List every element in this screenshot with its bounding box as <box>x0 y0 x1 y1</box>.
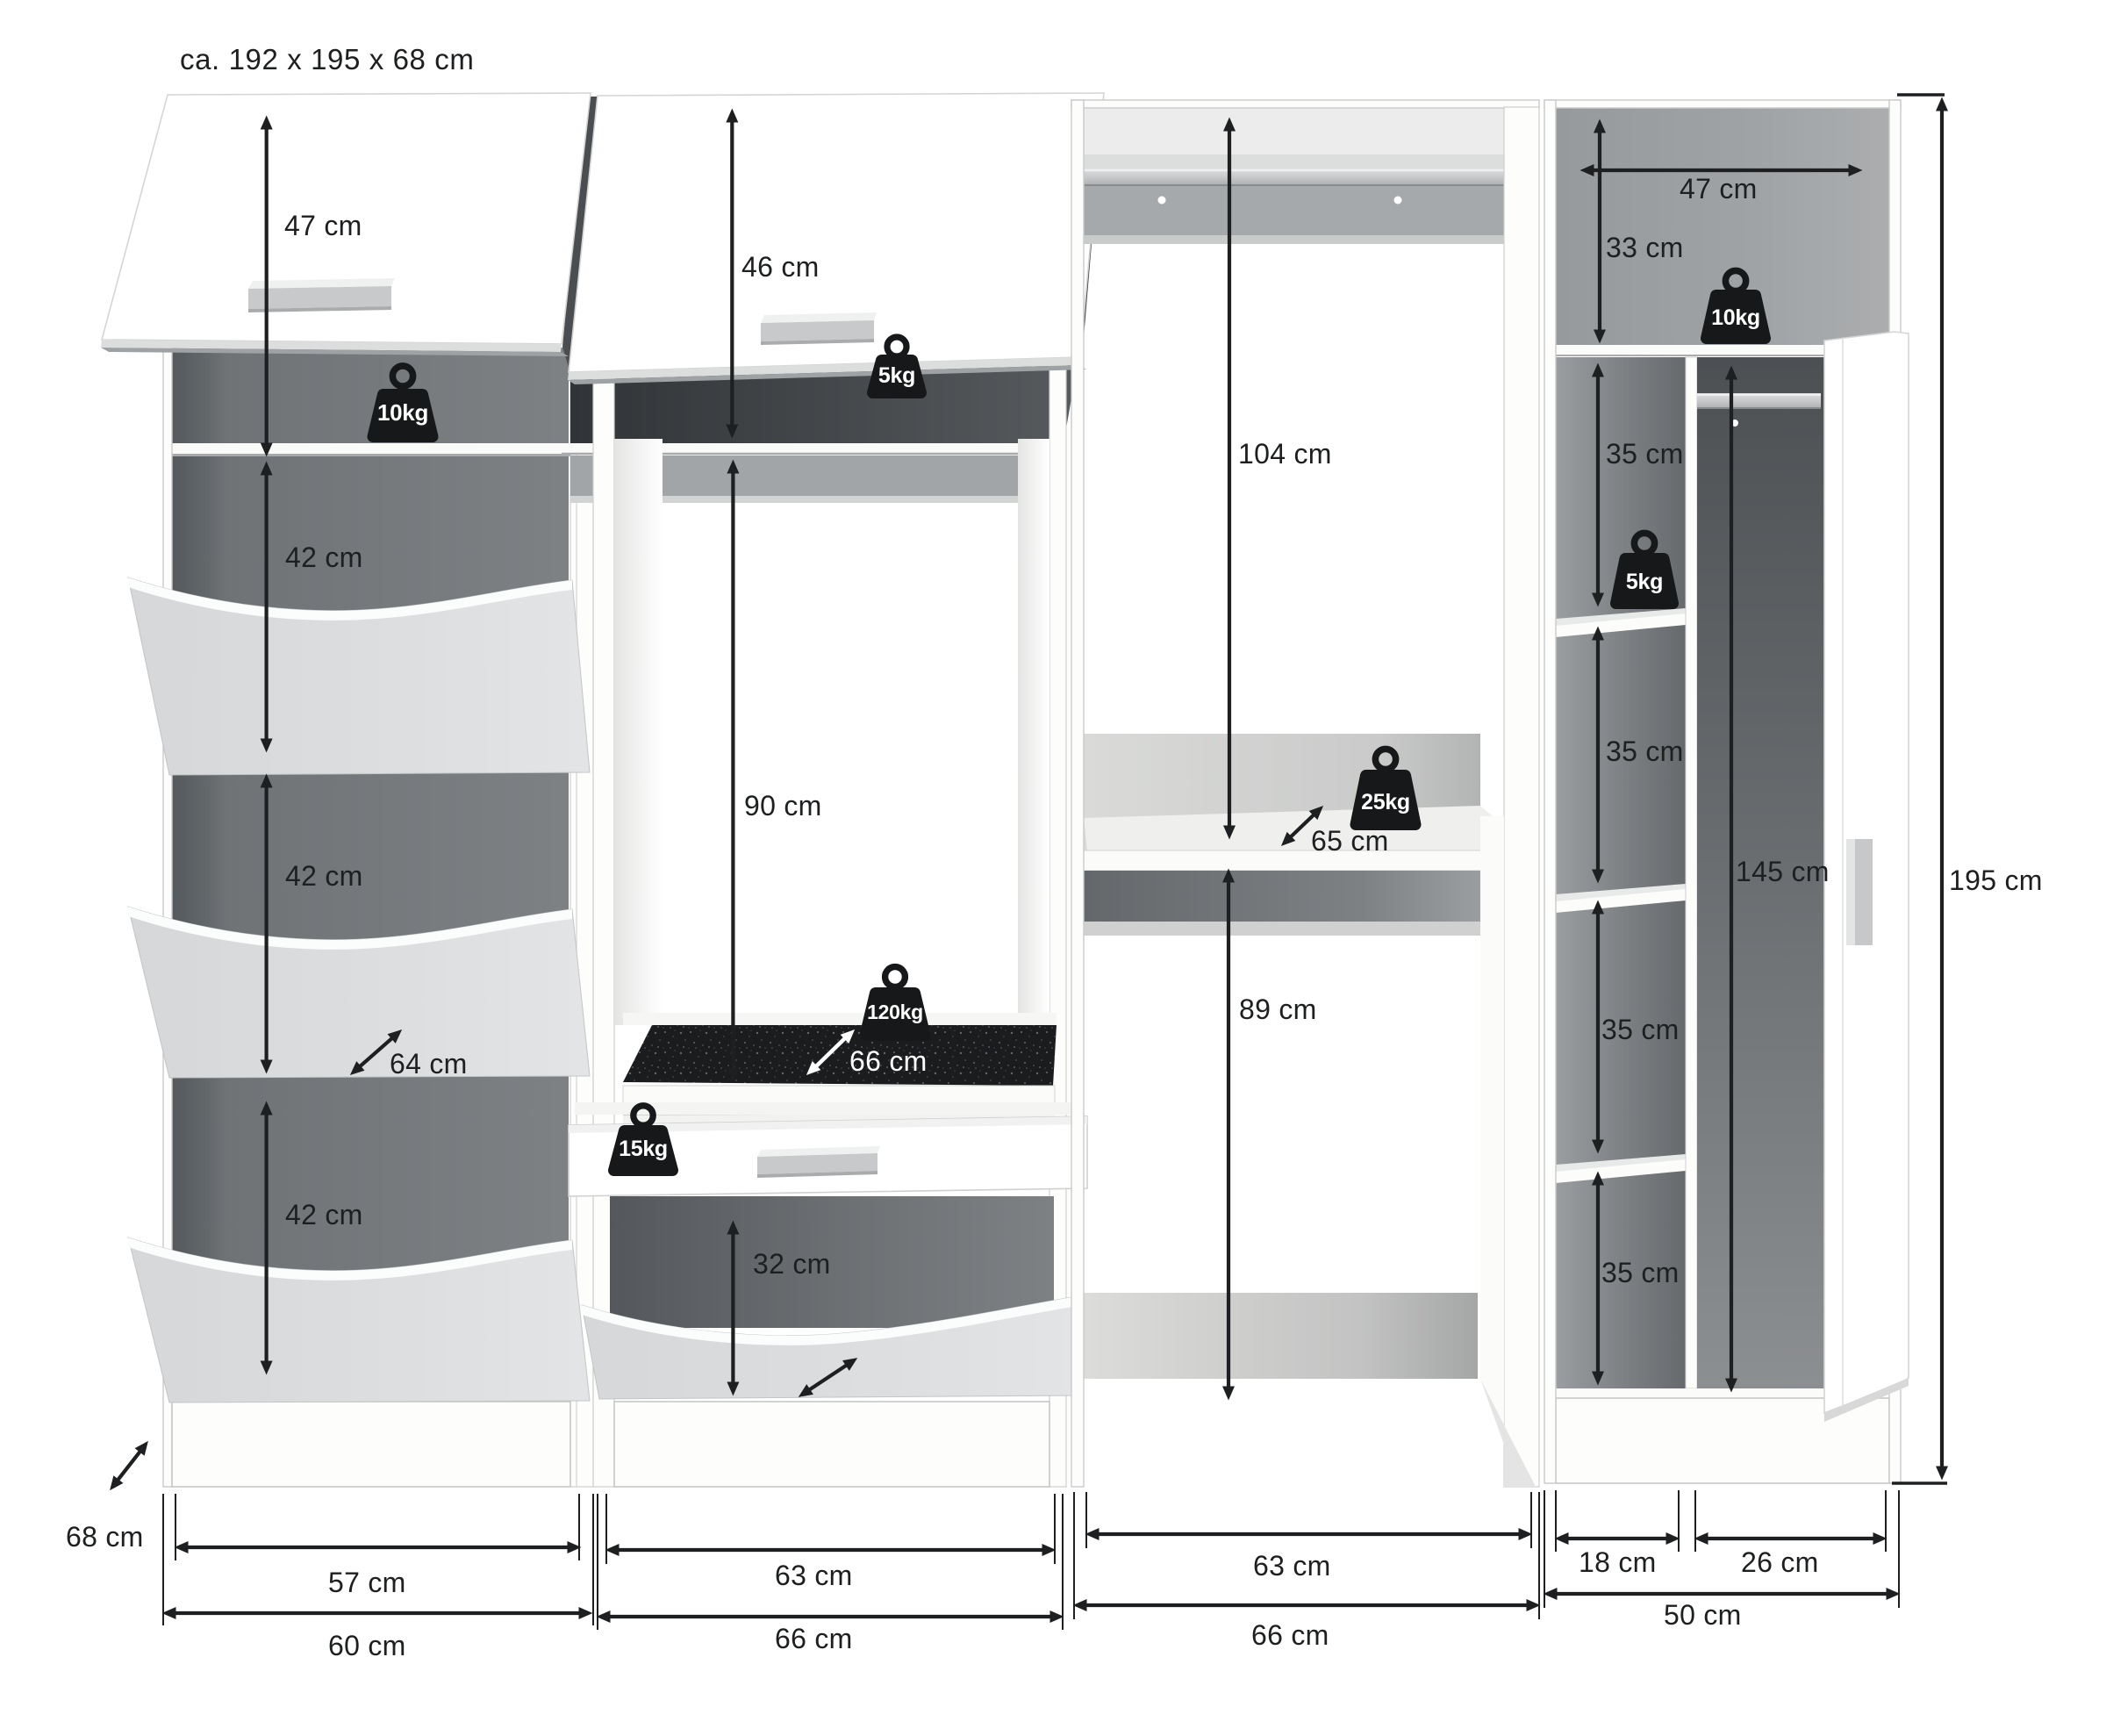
svg-text:42 cm: 42 cm <box>285 1199 363 1230</box>
svg-text:66 cm: 66 cm <box>1251 1619 1329 1651</box>
svg-text:104 cm: 104 cm <box>1238 438 1332 470</box>
svg-text:120kg: 120kg <box>867 1001 923 1023</box>
svg-text:35 cm: 35 cm <box>1601 1014 1680 1045</box>
svg-text:33 cm: 33 cm <box>1606 232 1684 263</box>
svg-text:32 cm: 32 cm <box>753 1248 831 1280</box>
svg-text:90 cm: 90 cm <box>744 790 822 821</box>
svg-text:46 cm: 46 cm <box>741 251 820 283</box>
svg-text:15kg: 15kg <box>619 1137 668 1161</box>
svg-text:35 cm: 35 cm <box>1601 1257 1680 1288</box>
svg-text:145 cm: 145 cm <box>1736 856 1830 887</box>
svg-text:47 cm: 47 cm <box>1680 173 1758 204</box>
svg-text:26 cm: 26 cm <box>1741 1546 1819 1578</box>
svg-text:50 cm: 50 cm <box>1664 1599 1742 1631</box>
svg-text:64 cm: 64 cm <box>390 1048 468 1080</box>
svg-text:60 cm: 60 cm <box>328 1630 406 1661</box>
svg-text:89 cm: 89 cm <box>1239 994 1317 1025</box>
svg-text:195 cm: 195 cm <box>1949 864 2043 896</box>
svg-text:63 cm: 63 cm <box>1253 1550 1331 1582</box>
svg-text:47 cm: 47 cm <box>284 210 362 241</box>
svg-text:18 cm: 18 cm <box>1579 1546 1657 1578</box>
svg-text:5kg: 5kg <box>1626 570 1663 594</box>
svg-text:63 cm: 63 cm <box>775 1560 853 1591</box>
svg-text:35 cm: 35 cm <box>1606 438 1684 470</box>
svg-text:57 cm: 57 cm <box>328 1567 406 1598</box>
svg-text:66 cm: 66 cm <box>775 1623 853 1654</box>
svg-text:5kg: 5kg <box>878 363 915 388</box>
svg-text:ca. 192 x 195 x 68 cm: ca. 192 x 195 x 68 cm <box>180 43 474 75</box>
svg-text:65 cm: 65 cm <box>1311 825 1389 857</box>
svg-text:10kg: 10kg <box>1711 305 1760 330</box>
svg-text:25kg: 25kg <box>1361 790 1410 814</box>
svg-text:66 cm: 66 cm <box>849 1045 928 1077</box>
svg-text:42 cm: 42 cm <box>285 860 363 892</box>
svg-text:68 cm: 68 cm <box>66 1521 144 1553</box>
svg-text:42 cm: 42 cm <box>285 542 363 573</box>
svg-text:35 cm: 35 cm <box>1606 735 1684 767</box>
svg-text:10kg: 10kg <box>377 399 428 426</box>
